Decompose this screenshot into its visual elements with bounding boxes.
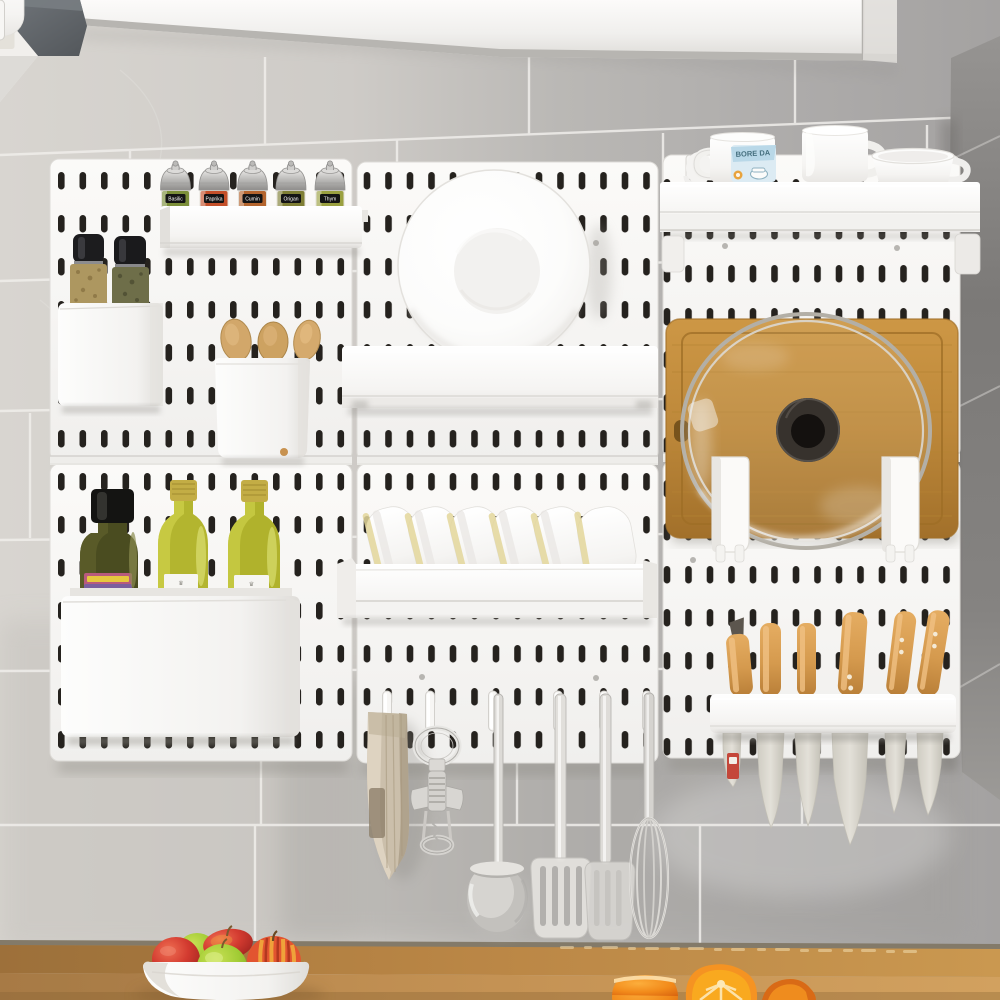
svg-text:♛: ♛ <box>178 580 183 587</box>
svg-text:Cumin: Cumin <box>245 197 260 203</box>
svg-text:♛: ♛ <box>249 581 254 588</box>
svg-text:Paprika: Paprika <box>206 197 223 203</box>
svg-text:Basilic: Basilic <box>168 197 183 203</box>
svg-text:BORE DA: BORE DA <box>735 148 771 159</box>
svg-text:Thym: Thym <box>324 197 337 203</box>
svg-text:Origan: Origan <box>283 197 298 203</box>
